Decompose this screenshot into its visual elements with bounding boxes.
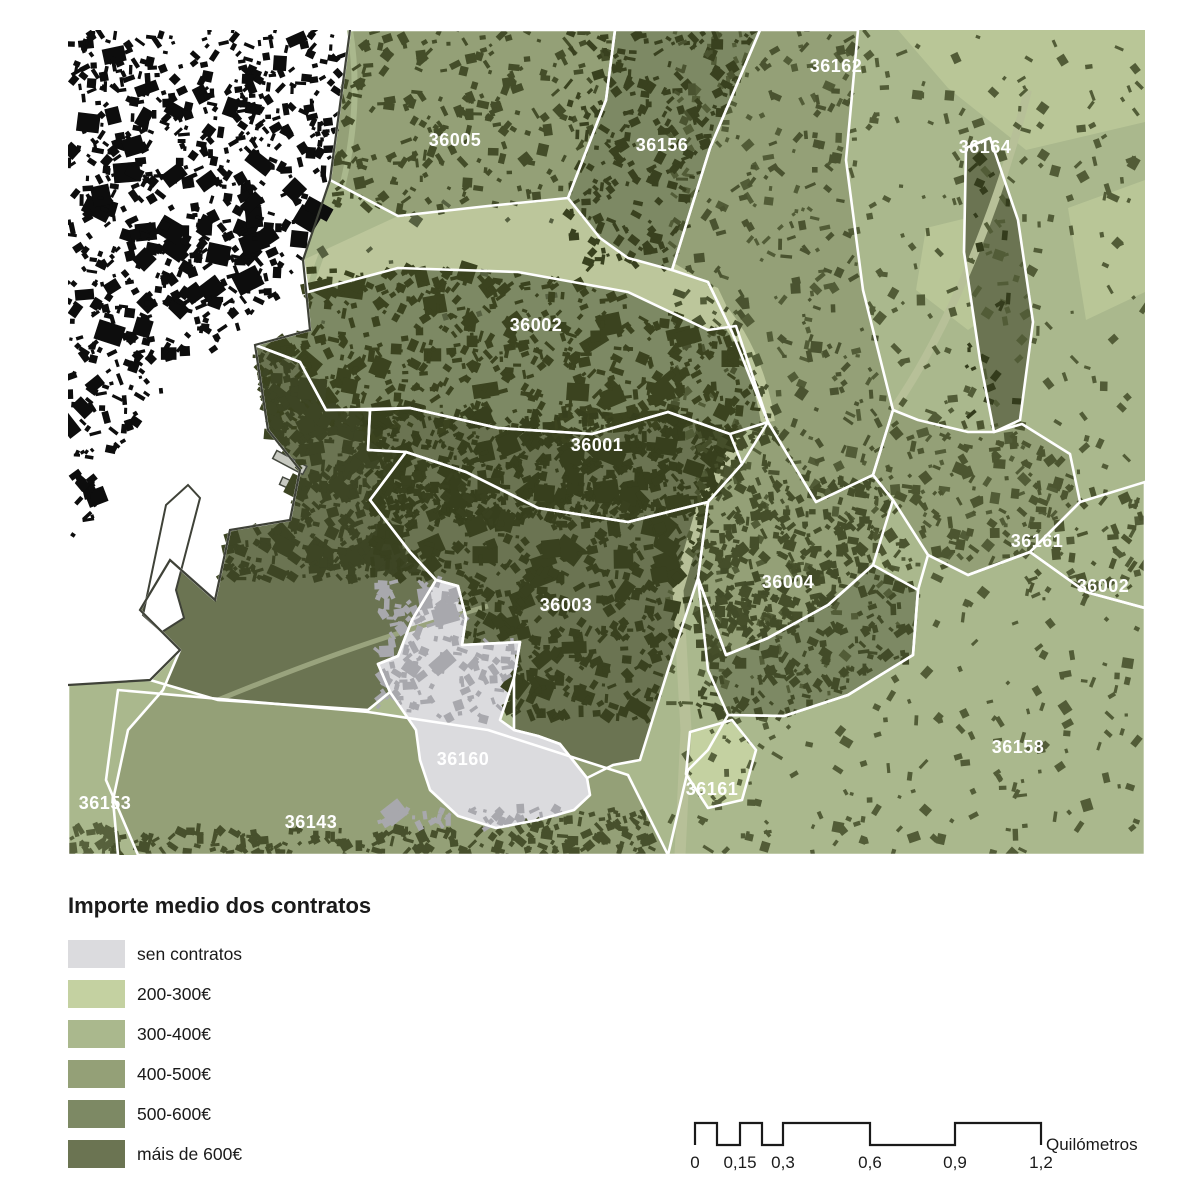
scale-unit-label: Quilómetros bbox=[1046, 1135, 1138, 1154]
legend-item-label: 500-600€ bbox=[137, 1104, 211, 1125]
legend-item-label: sen contratos bbox=[137, 944, 242, 965]
scale-bar-rule bbox=[695, 1123, 1041, 1145]
scale-tick-label: 0,3 bbox=[771, 1153, 795, 1172]
legend-swatch bbox=[68, 1060, 125, 1088]
legend-swatch bbox=[68, 1020, 125, 1048]
zone-label: 36161 bbox=[686, 779, 739, 799]
legend-swatch bbox=[68, 1100, 125, 1128]
legend-item: sen contratos bbox=[68, 940, 588, 968]
zone-label: 36156 bbox=[636, 135, 689, 155]
zone-label: 36002 bbox=[1077, 576, 1130, 596]
zone-label: 36143 bbox=[285, 812, 338, 832]
choropleth-map: 3616236005361563616436002360013616136002… bbox=[68, 30, 1145, 855]
zone-label: 36004 bbox=[762, 572, 815, 592]
legend-swatch bbox=[68, 940, 125, 968]
zone-label: 36001 bbox=[571, 435, 624, 455]
scale-tick-label: 0,15 bbox=[723, 1153, 756, 1172]
legend-item: máis de 600€ bbox=[68, 1140, 588, 1168]
zone-label: 36005 bbox=[429, 130, 482, 150]
scale-tick-label: 1,2 bbox=[1029, 1153, 1053, 1172]
legend-item: 500-600€ bbox=[68, 1100, 588, 1128]
legend-item: 400-500€ bbox=[68, 1060, 588, 1088]
scale-tick-label: 0 bbox=[690, 1153, 699, 1172]
legend-items: sen contratos200-300€300-400€400-500€500… bbox=[68, 940, 588, 1168]
zone-label: 36002 bbox=[510, 315, 563, 335]
legend-item-label: 300-400€ bbox=[137, 1024, 211, 1045]
scale-tick-label: 0,9 bbox=[943, 1153, 967, 1172]
legend-item-label: máis de 600€ bbox=[137, 1144, 242, 1165]
legend-item: 200-300€ bbox=[68, 980, 588, 1008]
zone-label: 36161 bbox=[1011, 531, 1064, 551]
legend-swatch bbox=[68, 980, 125, 1008]
zone-label: 36153 bbox=[79, 793, 132, 813]
scale-tick-label: 0,6 bbox=[858, 1153, 882, 1172]
legend-title: Importe medio dos contratos bbox=[68, 893, 588, 919]
legend-item-label: 400-500€ bbox=[137, 1064, 211, 1085]
zone-label: 36003 bbox=[540, 595, 593, 615]
zone-label: 36160 bbox=[437, 749, 490, 769]
legend-item-label: 200-300€ bbox=[137, 984, 211, 1005]
legend-item: 300-400€ bbox=[68, 1020, 588, 1048]
zone-label: 36164 bbox=[959, 137, 1012, 157]
scale-bar: 00,150,30,60,91,2Quilómetros bbox=[670, 1100, 1160, 1185]
map-legend: Importe medio dos contratos sen contrato… bbox=[68, 893, 588, 1180]
map-canvas: 3616236005361563616436002360013616136002… bbox=[68, 30, 1145, 855]
legend-swatch bbox=[68, 1140, 125, 1168]
zone-label: 36158 bbox=[992, 737, 1045, 757]
zone-label: 36162 bbox=[810, 56, 863, 76]
